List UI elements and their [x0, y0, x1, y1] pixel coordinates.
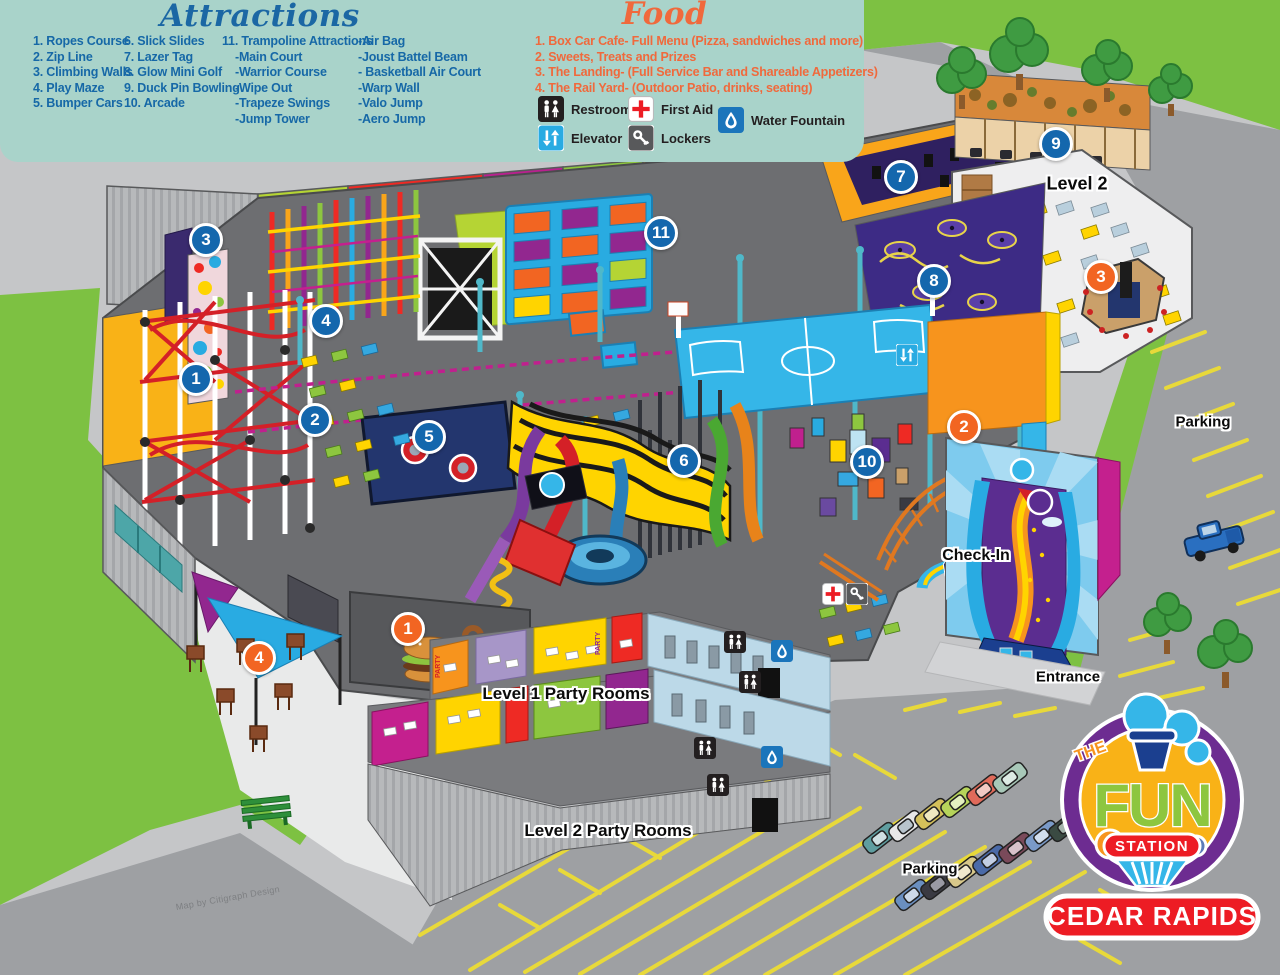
key-label: Lockers: [661, 131, 711, 146]
party-door-label: PARTY: [435, 654, 442, 678]
marker-attraction-7: 7: [884, 160, 918, 194]
water-fountain-icon: [761, 746, 783, 768]
marker-attraction-10: 10: [850, 445, 884, 479]
restrooms-icon: [724, 631, 746, 653]
attraction-item: -Joust Battel Beam: [358, 50, 481, 66]
attractions-title: Attractions: [160, 0, 320, 34]
legend-panel: Attractions 1. Ropes Course2. Zip Line3.…: [0, 0, 864, 162]
marker-food-4: 4: [242, 641, 276, 675]
attraction-item: 3. Climbing Walls: [33, 65, 133, 81]
attraction-item: -Trapeze Swings: [222, 96, 373, 112]
marker-attraction-4: 4: [309, 304, 343, 338]
key-lockers: Lockers: [628, 125, 711, 151]
key-label: First Aid: [661, 102, 713, 117]
food-item: 4. The Rail Yard- (Outdoor Patio, drinks…: [535, 81, 878, 97]
marker-food-1: 1: [391, 612, 425, 646]
first-aid-icon: [822, 583, 844, 605]
food-list: 1. Box Car Cafe- Full Menu (Pizza, sandw…: [535, 34, 878, 96]
lockers-icon: [628, 125, 654, 151]
map-label-parking: Parking: [902, 861, 957, 878]
attraction-item: -Wipe Out: [222, 81, 373, 97]
attraction-item: -Main Court: [222, 50, 373, 66]
restrooms-icon: [694, 737, 716, 759]
key-water-fountain: Water Fountain: [718, 107, 845, 133]
marker-attraction-9: 9: [1039, 127, 1073, 161]
map-label-level-2: Level 2: [1046, 174, 1107, 195]
key-label: Water Fountain: [751, 113, 845, 128]
attraction-item: - Basketball Air Court: [358, 65, 481, 81]
restrooms-icon: [538, 96, 564, 122]
food-item: 1. Box Car Cafe- Full Menu (Pizza, sandw…: [535, 34, 878, 50]
marker-attraction-2: 2: [298, 403, 332, 437]
food-item: 3. The Landing- (Full Service Bar and Sh…: [535, 65, 878, 81]
attraction-item: -Warrior Course: [222, 65, 373, 81]
attraction-item: 4. Play Maze: [33, 81, 133, 97]
key-first-aid: First Aid: [628, 96, 713, 122]
map-label-entrance: Entrance: [1036, 669, 1100, 686]
key-label: Elevator: [571, 131, 622, 146]
map-label-parking: Parking: [1175, 414, 1230, 431]
attraction-item: -Valo Jump: [358, 96, 481, 112]
attractions-column-4: -Air Bag-Joust Battel Beam- Basketball A…: [358, 34, 481, 128]
map-label-level-1-party-rooms: Level 1 Party Rooms: [482, 684, 649, 704]
attraction-item: 5. Bumper Cars: [33, 96, 133, 112]
logo-city: CEDAR RAPIDS: [1047, 901, 1257, 931]
attractions-column-3: 11. Trampoline Attractions-Main Court-Wa…: [222, 34, 373, 128]
attraction-item: -Warp Wall: [358, 81, 481, 97]
marker-food-3: 3: [1084, 260, 1118, 294]
key-restrooms: Restrooms: [538, 96, 639, 122]
marker-attraction-1: 1: [179, 362, 213, 396]
zone-bumper-cars: [362, 402, 515, 504]
elevator-icon: [538, 125, 564, 151]
map-label-level-2-party-rooms: Level 2 Party Rooms: [524, 821, 691, 841]
restrooms-icon: [739, 671, 761, 693]
first-aid-icon: [628, 96, 654, 122]
key-elevator: Elevator: [538, 125, 622, 151]
food-title: Food: [612, 0, 717, 32]
logo-station: STATION: [1115, 838, 1189, 855]
map-label-check-in: Check-In: [942, 547, 1010, 565]
marker-attraction-6: 6: [667, 444, 701, 478]
attractions-column-1: 1. Ropes Course2. Zip Line3. Climbing Wa…: [33, 34, 133, 112]
marker-attraction-11: 11: [644, 216, 678, 250]
attraction-item: -Air Bag: [358, 34, 481, 50]
party-door-label: PARTY: [595, 631, 602, 655]
marker-attraction-3: 3: [189, 223, 223, 257]
zone-valo-truss: [420, 240, 500, 338]
attraction-item: 2. Zip Line: [33, 50, 133, 66]
attraction-item: 1. Ropes Course: [33, 34, 133, 50]
attraction-item: 11. Trampoline Attractions: [222, 34, 373, 50]
attraction-item: -Aero Jump: [358, 112, 481, 128]
attraction-item: -Jump Tower: [222, 112, 373, 128]
marker-food-2: 2: [947, 410, 981, 444]
food-item: 2. Sweets, Treats and Prizes: [535, 50, 878, 66]
marker-attraction-5: 5: [412, 420, 446, 454]
elevator-icon: [896, 344, 918, 366]
lockers-icon: [846, 583, 868, 605]
fun-station-map-page: PARTY PARTY: [0, 0, 1280, 975]
restrooms-icon: [707, 774, 729, 796]
marker-attraction-8: 8: [917, 264, 951, 298]
water-fountain-icon: [771, 640, 793, 662]
water-fountain-icon: [718, 107, 744, 133]
